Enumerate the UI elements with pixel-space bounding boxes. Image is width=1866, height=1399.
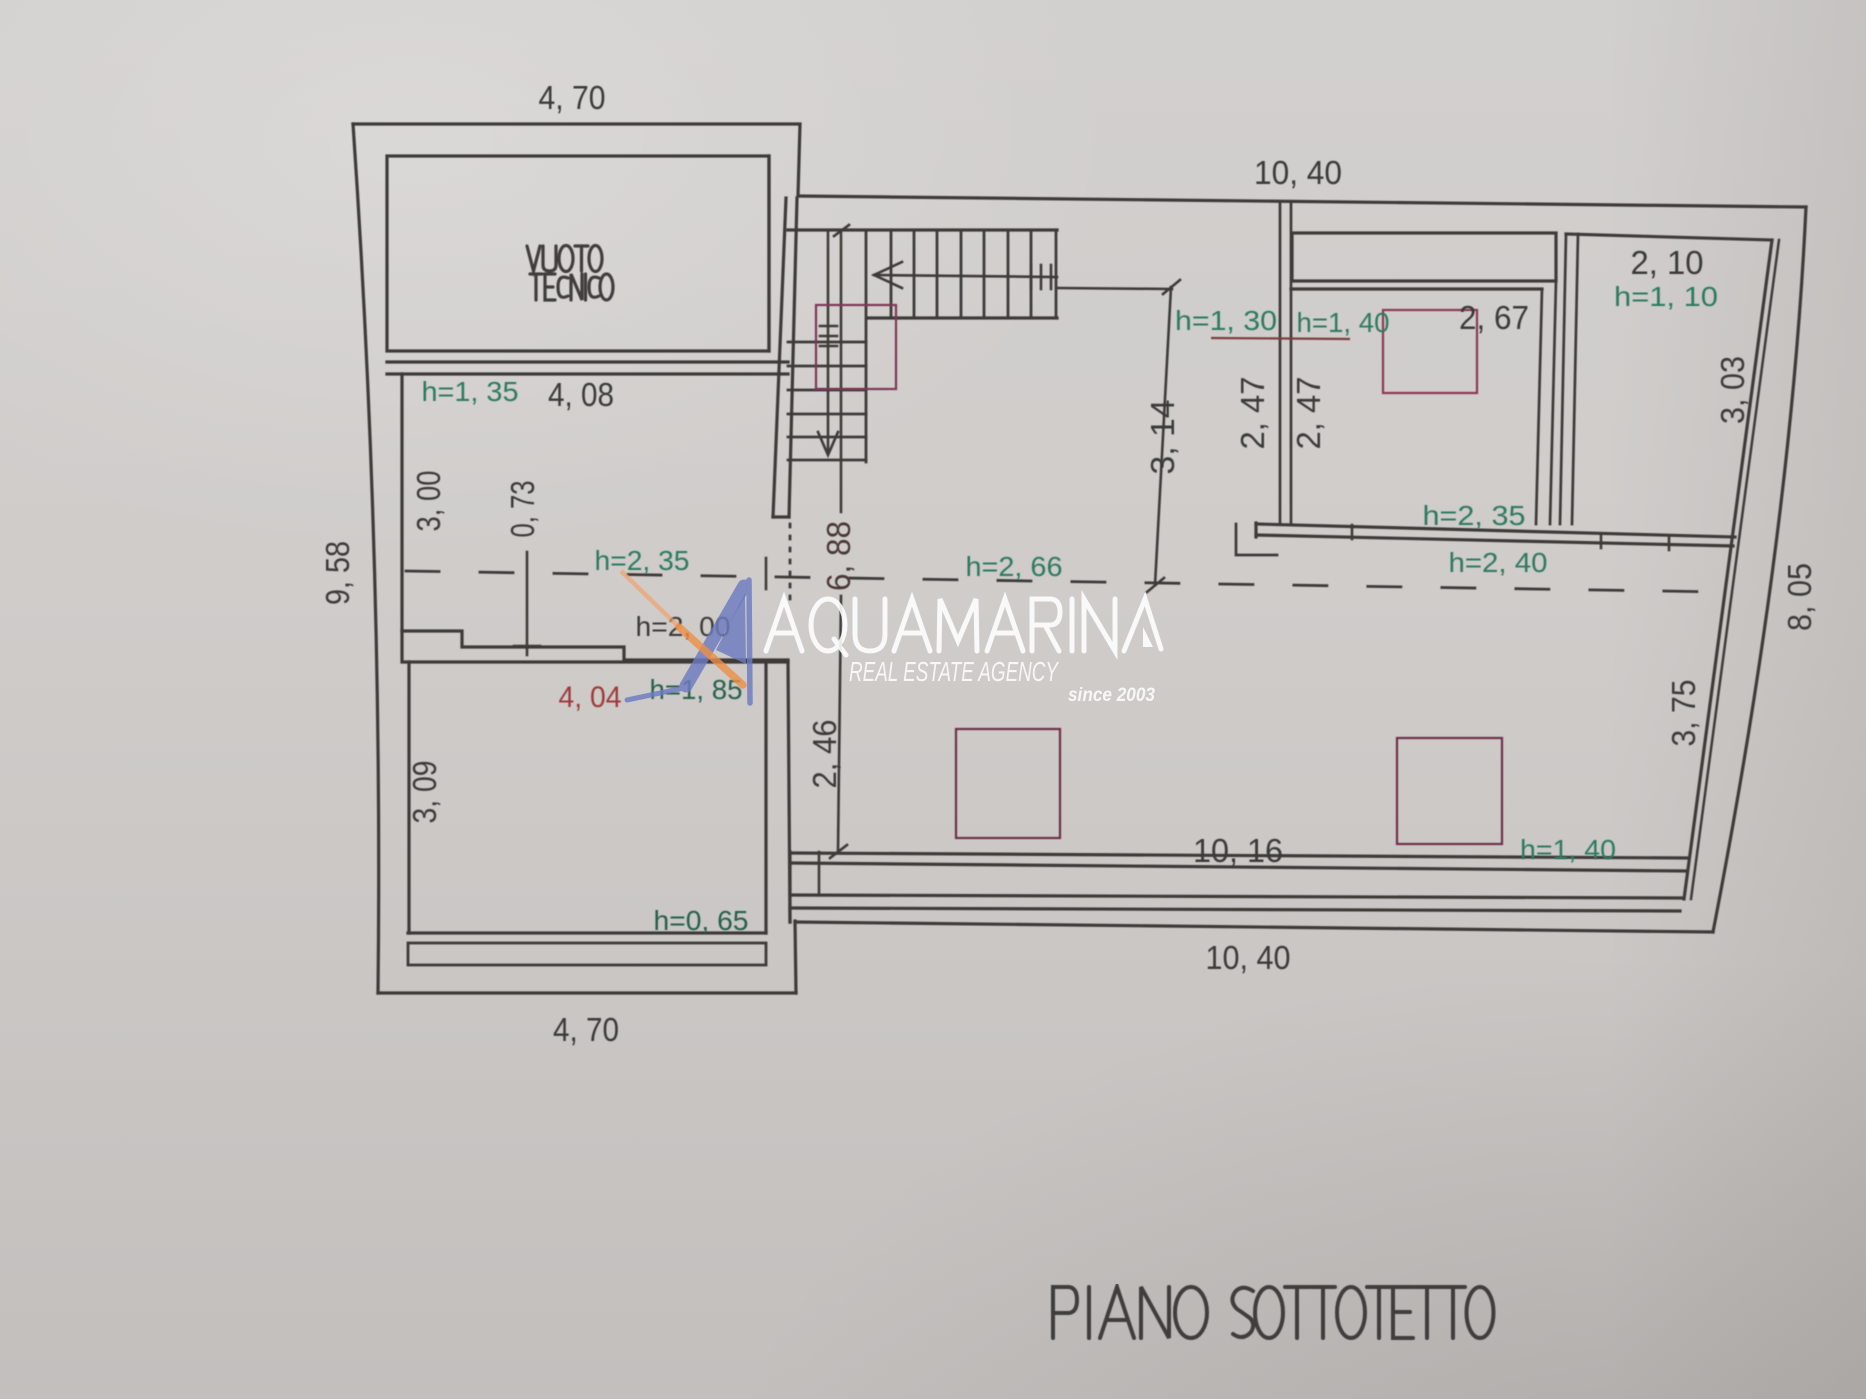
svg-text:h=1, 10: h=1, 10 (1614, 281, 1718, 312)
svg-text:h=0, 65: h=0, 65 (654, 905, 749, 936)
svg-text:4, 08: 4, 08 (548, 376, 614, 413)
svg-text:4, 70: 4, 70 (553, 1011, 619, 1048)
svg-text:10, 40: 10, 40 (1254, 154, 1342, 191)
svg-text:2, 47: 2, 47 (1290, 377, 1327, 450)
svg-text:10, 40: 10, 40 (1206, 939, 1291, 976)
svg-text:3, 75: 3, 75 (1665, 680, 1702, 747)
svg-text:8, 05: 8, 05 (1781, 563, 1818, 631)
svg-text:h=1, 40: h=1, 40 (1520, 834, 1616, 865)
svg-text:9, 58: 9, 58 (319, 541, 356, 605)
svg-text:3, 00: 3, 00 (410, 471, 447, 532)
svg-text:h=1, 30: h=1, 30 (1175, 305, 1277, 336)
svg-text:2, 46: 2, 46 (806, 720, 843, 789)
svg-text:2, 10: 2, 10 (1631, 244, 1704, 281)
svg-text:REAL ESTATE AGENCY: REAL ESTATE AGENCY (849, 656, 1060, 687)
svg-text:h=2, 40: h=2, 40 (1449, 547, 1548, 578)
svg-text:3, 03: 3, 03 (1714, 356, 1751, 424)
svg-text:h=2, 35: h=2, 35 (1423, 500, 1526, 531)
svg-text:h=2, 66: h=2, 66 (966, 551, 1063, 582)
svg-text:6, 88: 6, 88 (820, 521, 857, 591)
svg-text:2, 47: 2, 47 (1234, 377, 1271, 450)
svg-text:since 2003: since 2003 (1068, 685, 1155, 706)
svg-text:10, 16: 10, 16 (1193, 832, 1283, 869)
svg-text:h=1, 35: h=1, 35 (422, 376, 519, 407)
svg-text:4, 70: 4, 70 (539, 79, 606, 116)
svg-text:4, 04: 4, 04 (559, 681, 622, 714)
svg-text:0, 73: 0, 73 (504, 481, 541, 538)
svg-text:3, 14: 3, 14 (1144, 400, 1181, 475)
svg-text:h=2, 35: h=2, 35 (595, 545, 690, 576)
svg-text:h=1, 40: h=1, 40 (1297, 307, 1390, 338)
svg-text:2, 67: 2, 67 (1459, 299, 1529, 336)
svg-text:3, 09: 3, 09 (406, 761, 443, 824)
